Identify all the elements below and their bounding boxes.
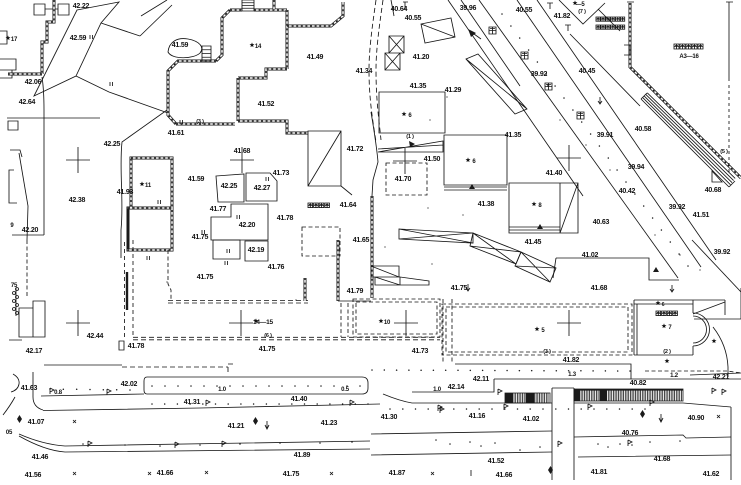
svg-text:1.3: 1.3 — [568, 372, 577, 378]
svg-text:42.17: 42.17 — [26, 348, 43, 355]
svg-text:40.76: 40.76 — [622, 430, 639, 437]
svg-text:40.42: 40.42 — [619, 188, 636, 195]
svg-text:41.02: 41.02 — [582, 252, 599, 259]
svg-text:40.63: 40.63 — [593, 219, 610, 226]
svg-text:17: 17 — [11, 37, 18, 43]
svg-text:42.27: 42.27 — [254, 185, 271, 192]
svg-text:41.16: 41.16 — [469, 413, 486, 420]
svg-text:41.70: 41.70 — [395, 176, 412, 183]
svg-text:42.02: 42.02 — [121, 381, 138, 388]
svg-text:41.75: 41.75 — [283, 471, 300, 478]
svg-text:41.82: 41.82 — [554, 13, 571, 20]
svg-text:41.45: 41.45 — [525, 239, 542, 246]
svg-text:(1 ): (1 ) — [406, 134, 414, 140]
svg-text:40.55: 40.55 — [516, 7, 533, 14]
svg-text:41.79: 41.79 — [347, 288, 364, 295]
svg-text:1.0: 1.0 — [433, 387, 442, 393]
svg-text:41.35: 41.35 — [410, 83, 427, 90]
svg-text:41.78: 41.78 — [277, 215, 294, 222]
svg-text:41.66: 41.66 — [157, 470, 174, 477]
svg-text:(7 ): (7 ) — [578, 9, 586, 15]
svg-text:41.62: 41.62 — [703, 471, 720, 478]
svg-text:41.21: 41.21 — [228, 423, 245, 430]
svg-text:40.68: 40.68 — [705, 187, 722, 194]
svg-text:39.96: 39.96 — [460, 5, 477, 12]
svg-text:11: 11 — [145, 183, 152, 189]
svg-text:41.66: 41.66 — [496, 472, 513, 479]
svg-text:41.75: 41.75 — [451, 285, 468, 292]
svg-text:41.68: 41.68 — [654, 456, 671, 463]
svg-text:41.59: 41.59 — [172, 42, 189, 49]
svg-text:42.20: 42.20 — [22, 227, 39, 234]
svg-text:42.11: 42.11 — [473, 376, 489, 383]
svg-text:41.52: 41.52 — [258, 101, 275, 108]
svg-text:75: 75 — [11, 283, 18, 289]
svg-text:39.92: 39.92 — [531, 71, 548, 78]
svg-text:42.06: 42.06 — [25, 79, 42, 86]
svg-text:41.46: 41.46 — [32, 454, 49, 461]
svg-text:42.64: 42.64 — [19, 99, 36, 106]
svg-text:41.40: 41.40 — [291, 396, 308, 403]
svg-text:41.64: 41.64 — [340, 202, 357, 209]
svg-text:40.90: 40.90 — [688, 415, 705, 422]
svg-text:41.89: 41.89 — [294, 452, 311, 459]
svg-text:41.78: 41.78 — [128, 343, 145, 350]
svg-text:41.61: 41.61 — [168, 130, 185, 137]
svg-text:41.07: 41.07 — [28, 419, 45, 426]
svg-text:41.63: 41.63 — [21, 385, 38, 392]
svg-text:1.0: 1.0 — [218, 387, 227, 393]
svg-text:(2 ): (2 ) — [663, 349, 671, 355]
svg-text:(3 ): (3 ) — [543, 349, 551, 355]
svg-text:42.59: 42.59 — [70, 35, 87, 42]
svg-text:41.81: 41.81 — [591, 469, 608, 476]
svg-text:41.77: 41.77 — [210, 206, 227, 213]
svg-text:39.92: 39.92 — [669, 204, 686, 211]
svg-text:41.73: 41.73 — [273, 170, 290, 177]
svg-text:40.64: 40.64 — [391, 6, 408, 13]
svg-text:41.73: 41.73 — [412, 348, 429, 355]
svg-text:41.51: 41.51 — [693, 212, 710, 219]
svg-text:41.87: 41.87 — [389, 470, 406, 477]
svg-text:41.82: 41.82 — [563, 357, 580, 364]
svg-text:41.76: 41.76 — [268, 264, 285, 271]
svg-text:41.75: 41.75 — [259, 346, 276, 353]
svg-text:40.55: 40.55 — [405, 15, 422, 22]
svg-text:40.82: 40.82 — [630, 380, 647, 387]
svg-text:41.68: 41.68 — [591, 285, 608, 292]
svg-text:42.20: 42.20 — [239, 222, 256, 229]
svg-text:41.75: 41.75 — [197, 274, 214, 281]
svg-text:14: 14 — [255, 44, 262, 50]
svg-text:42.19: 42.19 — [248, 247, 265, 254]
svg-text:41.75: 41.75 — [192, 234, 209, 241]
svg-text:41.93: 41.93 — [117, 189, 134, 196]
svg-text:40.45: 40.45 — [579, 68, 596, 75]
svg-text:(5 ): (5 ) — [720, 149, 728, 155]
svg-text:42.22: 42.22 — [73, 3, 90, 10]
svg-text:41.72: 41.72 — [347, 146, 364, 153]
svg-text:1.2: 1.2 — [670, 373, 679, 379]
svg-text:05: 05 — [6, 430, 13, 436]
svg-text:10: 10 — [384, 320, 391, 326]
svg-text:41.23: 41.23 — [321, 420, 338, 427]
svg-text:41.59: 41.59 — [188, 176, 205, 183]
svg-text:A3—16: A3—16 — [679, 54, 699, 60]
svg-text:6: 6 — [662, 302, 665, 308]
svg-text:41.52: 41.52 — [488, 458, 505, 465]
svg-text:41.31: 41.31 — [184, 399, 201, 406]
svg-text:41.65: 41.65 — [353, 237, 370, 244]
svg-text:42.38: 42.38 — [69, 197, 86, 204]
svg-text:42.25: 42.25 — [104, 141, 121, 148]
svg-text:40.58: 40.58 — [635, 126, 652, 133]
svg-text:41.20: 41.20 — [413, 54, 430, 61]
svg-text:—5: —5 — [576, 2, 586, 8]
svg-text:0.8: 0.8 — [54, 390, 63, 396]
svg-text:41.38: 41.38 — [478, 201, 495, 208]
svg-text:42.21: 42.21 — [713, 374, 730, 381]
svg-text:41.29: 41.29 — [445, 87, 462, 94]
svg-text:41.56: 41.56 — [25, 472, 42, 479]
svg-text:41.02: 41.02 — [523, 416, 540, 423]
svg-text:41.40: 41.40 — [546, 170, 563, 177]
svg-text:42.14: 42.14 — [448, 384, 465, 391]
svg-text:42.44: 42.44 — [87, 333, 104, 340]
svg-text:41.34: 41.34 — [356, 68, 373, 75]
svg-text:41.50: 41.50 — [424, 156, 441, 163]
svg-text:39.92: 39.92 — [714, 249, 731, 256]
svg-text:41.30: 41.30 — [381, 414, 398, 421]
svg-text:39.94: 39.94 — [628, 164, 645, 171]
svg-text:39.91: 39.91 — [597, 132, 614, 139]
svg-text:42.25: 42.25 — [221, 183, 238, 190]
svg-text:41.49: 41.49 — [307, 54, 324, 61]
svg-text:41.68: 41.68 — [234, 148, 251, 155]
svg-text:(6 ): (6 ) — [264, 333, 272, 339]
svg-text:(3 ): (3 ) — [196, 119, 204, 125]
svg-text:0.5: 0.5 — [341, 387, 350, 393]
svg-text:41.35: 41.35 — [505, 132, 522, 139]
